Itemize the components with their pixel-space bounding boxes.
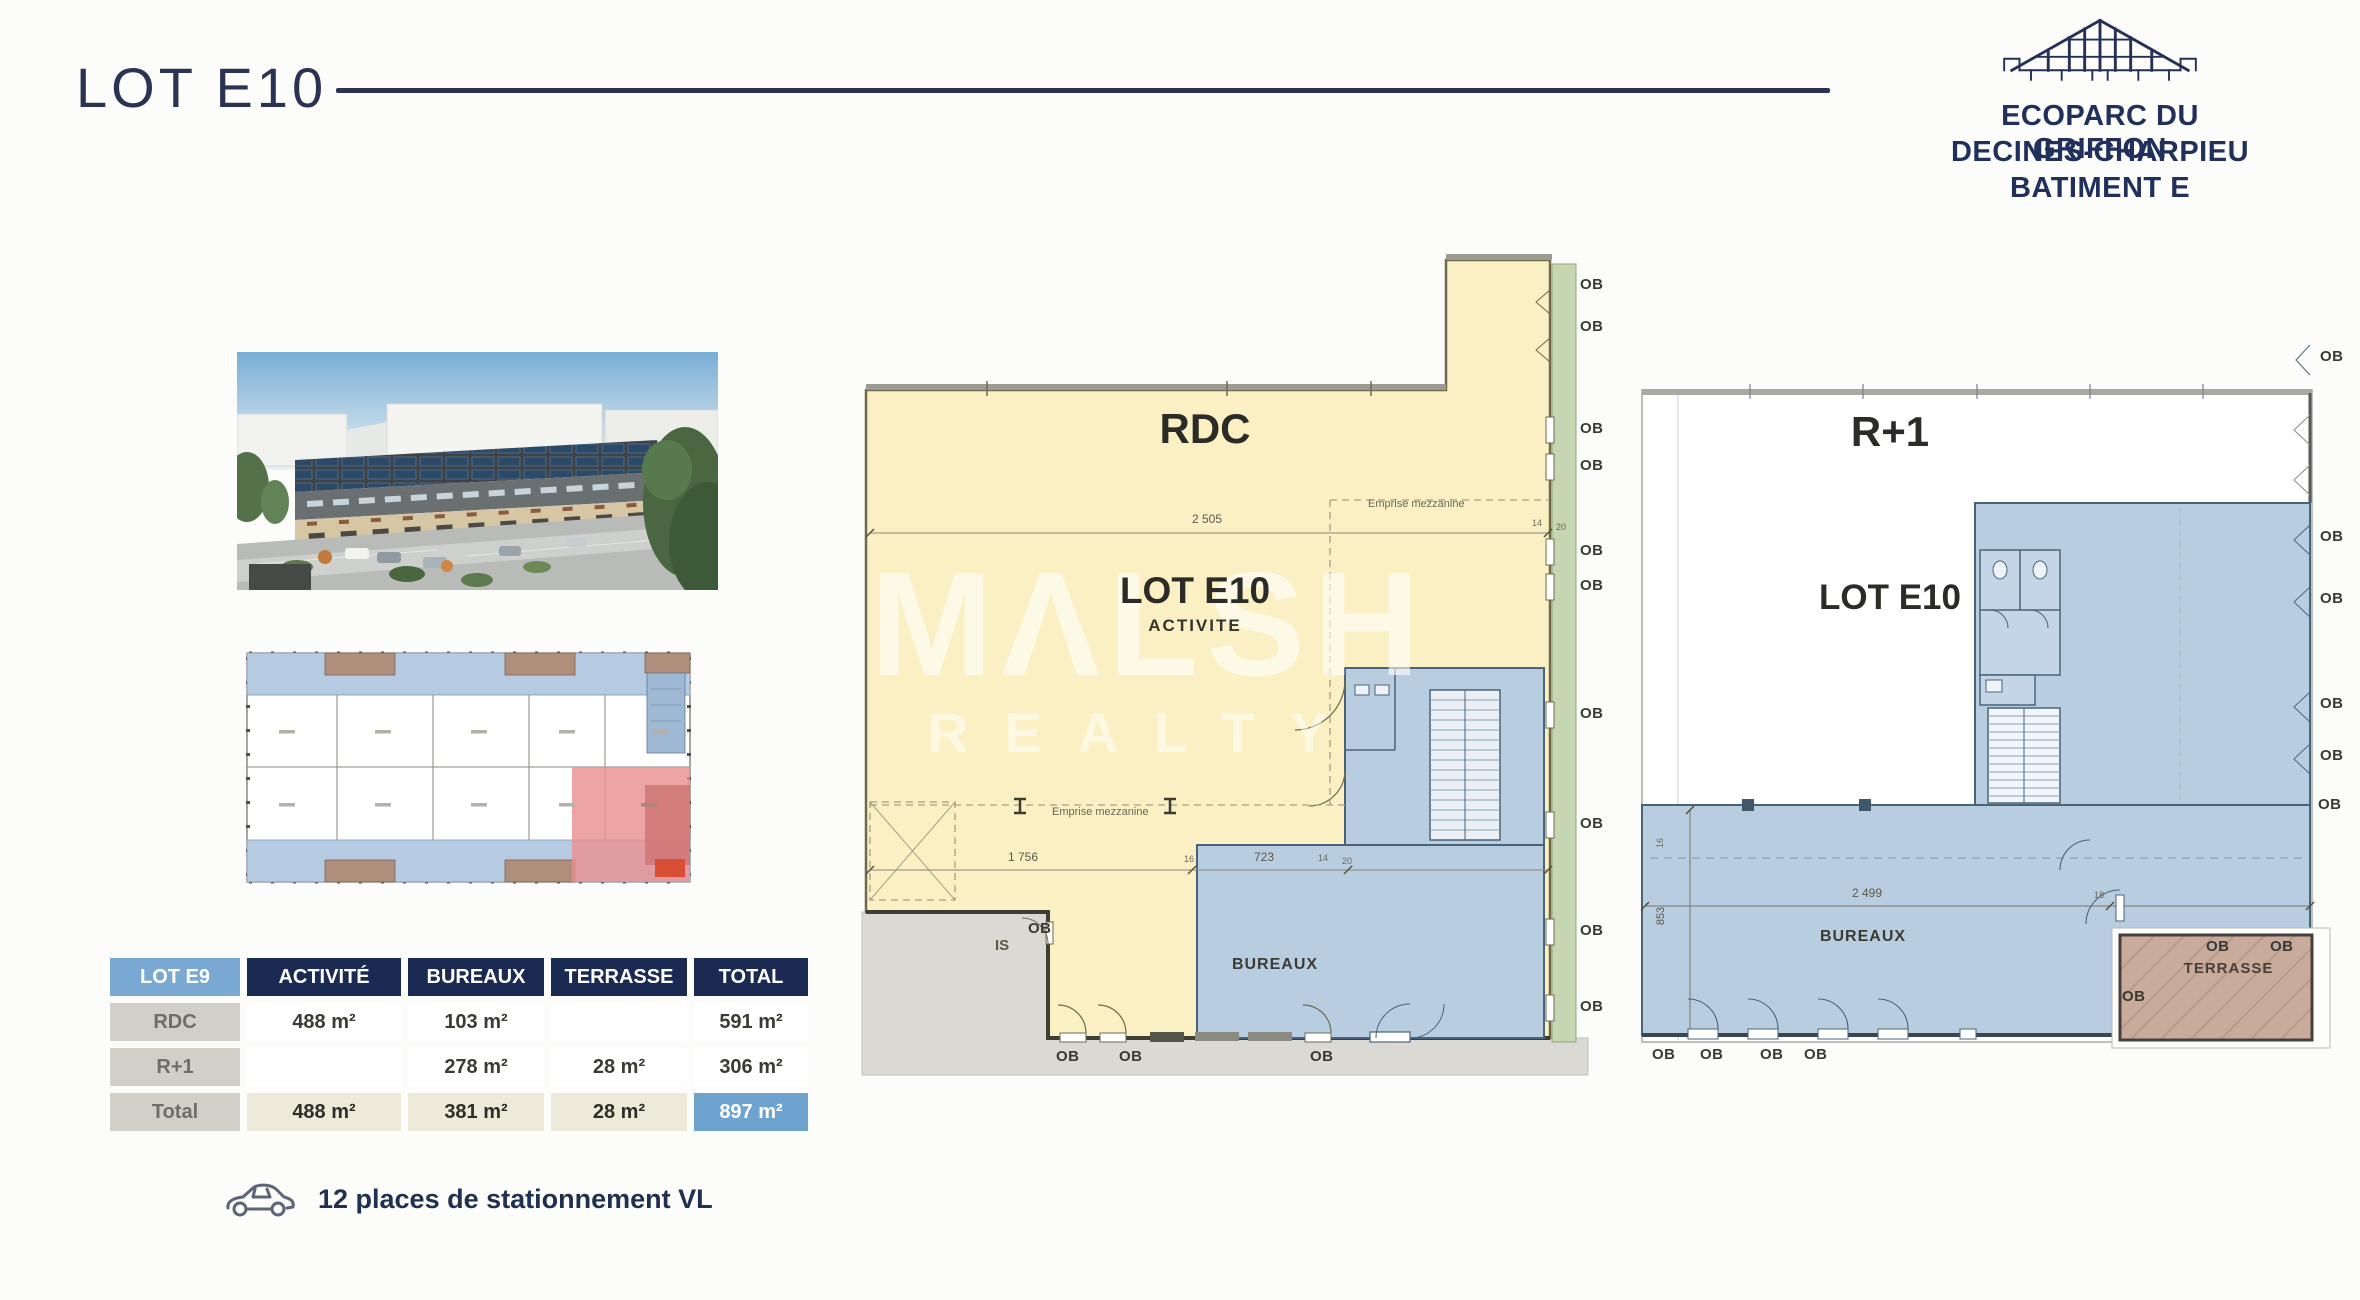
r1-lot-label: LOT E10	[1770, 578, 2010, 618]
table-cell: 591 m²	[694, 1003, 808, 1041]
table-cell: 278 m²	[408, 1048, 544, 1086]
title-rule	[336, 88, 1830, 93]
rdc-mezzanine-label-top: Emprise mezzanine	[1368, 498, 1465, 510]
r1-stairs	[1988, 708, 2060, 803]
table-header-activite: ACTIVITÉ	[247, 958, 401, 996]
table-row-label: Total	[110, 1093, 240, 1131]
table-cell-total: 28 m²	[551, 1093, 687, 1131]
ob-window-label: OB	[1119, 1048, 1143, 1065]
page-title: LOT E10	[76, 55, 327, 120]
rdc-dim-small: 14	[1532, 518, 1542, 528]
table-cell-total: 381 m²	[408, 1093, 544, 1131]
r1-dim-small: 16	[1655, 838, 1665, 848]
logo-line-2: DECINES-CHARPIEU	[1935, 136, 2265, 169]
ob-window-label: OB	[1580, 577, 1604, 594]
ob-window-label: OB	[1700, 1046, 1724, 1063]
ob-window-label: OB	[1310, 1048, 1334, 1065]
rdc-bureaux-label: BUREAUX	[1195, 956, 1355, 974]
ob-window-label: OB	[1580, 420, 1604, 437]
ob-window-label: OB	[1056, 1048, 1080, 1065]
ob-window-label: OB	[1028, 920, 1052, 937]
table-header-terrasse: TERRASSE	[551, 958, 687, 996]
ob-window-label: OB	[2122, 988, 2146, 1005]
surface-table: LOT E9 ACTIVITÉ BUREAUX TERRASSE TOTAL R…	[110, 958, 808, 1131]
ob-window-label: OB	[1580, 457, 1604, 474]
car-icon	[222, 1176, 298, 1220]
table-cell-total: 488 m²	[247, 1093, 401, 1131]
ob-window-label: OB	[2320, 590, 2344, 607]
r1-bureaux-label: BUREAUX	[1783, 928, 1943, 946]
rdc-dim-small: 20	[1342, 856, 1352, 866]
rdc-lot-label: LOT E10	[1075, 570, 1315, 612]
rdc-dim-small: 14	[1318, 853, 1328, 863]
table-cell: 306 m²	[694, 1048, 808, 1086]
ob-window-label: OB	[2206, 938, 2230, 955]
logo-line-3: BATIMENT E	[1935, 172, 2265, 205]
table-cell	[247, 1048, 401, 1086]
ob-window-label: OB	[2318, 796, 2342, 813]
ob-window-label: OB	[1652, 1046, 1676, 1063]
ob-window-label: OB	[2320, 348, 2344, 365]
rdc-is-label: IS	[995, 937, 1009, 954]
ob-window-label: OB	[1804, 1046, 1828, 1063]
parking-note: 12 places de stationnement VL	[318, 1184, 713, 1215]
table-cell	[551, 1003, 687, 1041]
table-header-lot: LOT E9	[110, 958, 240, 996]
ob-window-label: OB	[2320, 695, 2344, 712]
rdc-activite-label: ACTIVITE	[1075, 616, 1315, 636]
ob-window-label: OB	[1580, 705, 1604, 722]
rdc-dim-top: 2 505	[1192, 512, 1222, 526]
rdc-green-strip	[1552, 264, 1576, 1042]
ob-window-label: OB	[2270, 938, 2294, 955]
table-cell: 103 m²	[408, 1003, 544, 1041]
table-cell-grand-total: 897 m²	[694, 1093, 808, 1131]
r1-title: R+1	[1805, 408, 1975, 456]
table-header-total: TOTAL	[694, 958, 808, 996]
ob-window-label: OB	[1580, 542, 1604, 559]
rdc-dim-tick: 16	[1184, 854, 1194, 864]
ob-window-label: OB	[1580, 922, 1604, 939]
ob-window-label: OB	[2320, 528, 2344, 545]
rdc-dim-bottom-1: 1 756	[1008, 850, 1038, 864]
rdc-dim-bottom-2: 723	[1254, 850, 1274, 864]
r1-terrasse-label: TERRASSE	[2156, 960, 2301, 977]
rdc-mezzanine-label-bottom: Emprise mezzanine	[1052, 806, 1149, 818]
key-site-plan	[237, 645, 700, 890]
watermark-line2: REALTY	[928, 700, 1364, 765]
r1-floor-plan	[1630, 250, 2360, 1080]
ob-window-label: OB	[1580, 815, 1604, 832]
ob-window-label: OB	[1760, 1046, 1784, 1063]
rdc-title: RDC	[1120, 405, 1290, 453]
rdc-dim-small: 20	[1556, 522, 1566, 532]
table-cell: 488 m²	[247, 1003, 401, 1041]
ob-window-label: OB	[2320, 747, 2344, 764]
r1-dim-height: 853	[1655, 907, 1667, 925]
table-cell: 28 m²	[551, 1048, 687, 1086]
table-header-bureaux: BUREAUX	[408, 958, 544, 996]
table-row-label: RDC	[110, 1003, 240, 1041]
aerial-render-photo	[237, 352, 718, 590]
table-row-label: R+1	[110, 1048, 240, 1086]
r1-dim-small: 18	[2094, 890, 2104, 900]
ob-window-label: OB	[1580, 998, 1604, 1015]
ob-window-label: OB	[1580, 318, 1604, 335]
ecoparc-building-logo-icon	[1985, 10, 2215, 96]
brochure-page: LOT E10 ECOPARC DU GRIFFON DECINES-CHARP…	[0, 0, 2360, 1300]
r1-dim-width: 2 499	[1852, 886, 1882, 900]
ob-window-label: OB	[1580, 276, 1604, 293]
